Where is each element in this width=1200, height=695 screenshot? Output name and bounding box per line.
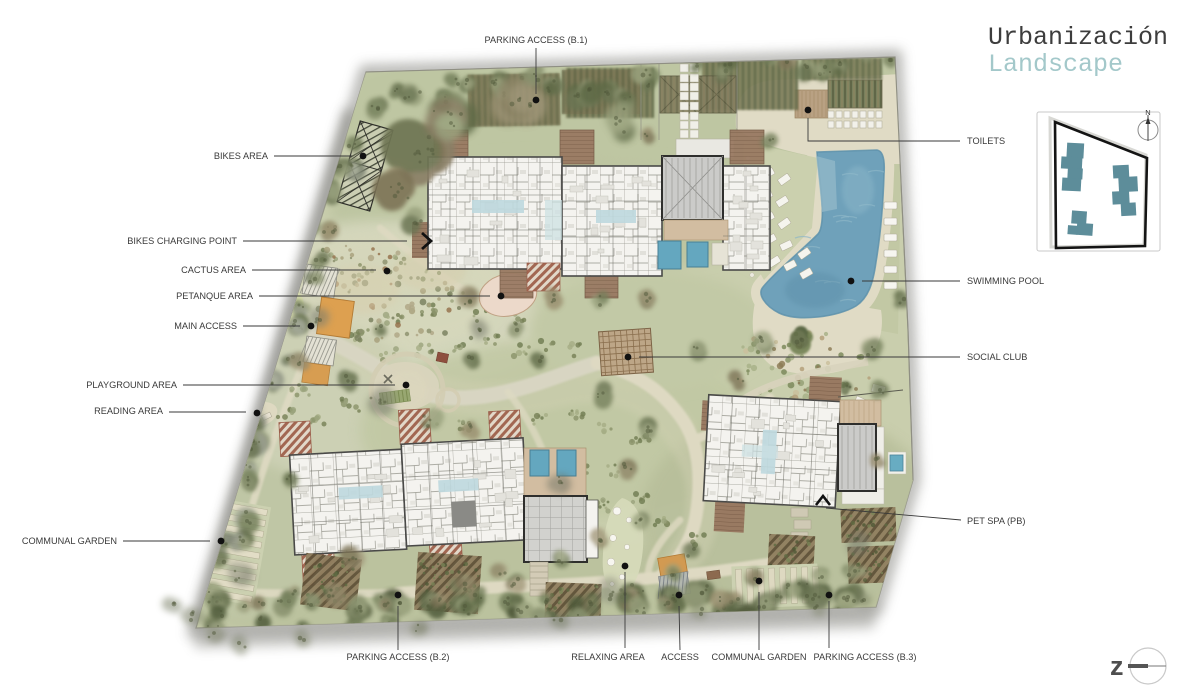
svg-text:PARKING ACCESS (B.2): PARKING ACCESS (B.2) (347, 652, 450, 662)
svg-text:MAIN ACCESS: MAIN ACCESS (174, 321, 237, 331)
svg-text:COMMUNAL GARDEN: COMMUNAL GARDEN (711, 652, 806, 662)
svg-text:TOILETS: TOILETS (967, 136, 1005, 146)
svg-text:PET SPA (PB): PET SPA (PB) (967, 516, 1025, 526)
svg-text:SWIMMING POOL: SWIMMING POOL (967, 276, 1044, 286)
svg-text:BIKES AREA: BIKES AREA (214, 151, 269, 161)
svg-text:PARKING ACCESS (B.3): PARKING ACCESS (B.3) (814, 652, 917, 662)
svg-text:READING AREA: READING AREA (94, 406, 164, 416)
svg-text:BIKES CHARGING POINT: BIKES CHARGING POINT (127, 236, 237, 246)
svg-text:RELAXING AREA: RELAXING AREA (571, 652, 645, 662)
svg-text:PETANQUE AREA: PETANQUE AREA (176, 291, 254, 301)
svg-text:ACCESS: ACCESS (661, 652, 699, 662)
svg-text:SOCIAL CLUB: SOCIAL CLUB (967, 352, 1027, 362)
svg-text:Landscape: Landscape (988, 50, 1123, 79)
svg-text:COMMUNAL GARDEN: COMMUNAL GARDEN (22, 536, 117, 546)
svg-text:Urbanización: Urbanización (988, 23, 1168, 52)
svg-text:z: z (1110, 651, 1124, 681)
svg-text:N: N (1145, 108, 1150, 117)
svg-text:PARKING ACCESS (B.1): PARKING ACCESS (B.1) (485, 35, 588, 45)
svg-text:PLAYGROUND AREA: PLAYGROUND AREA (86, 380, 178, 390)
svg-text:CACTUS AREA: CACTUS AREA (181, 265, 247, 275)
